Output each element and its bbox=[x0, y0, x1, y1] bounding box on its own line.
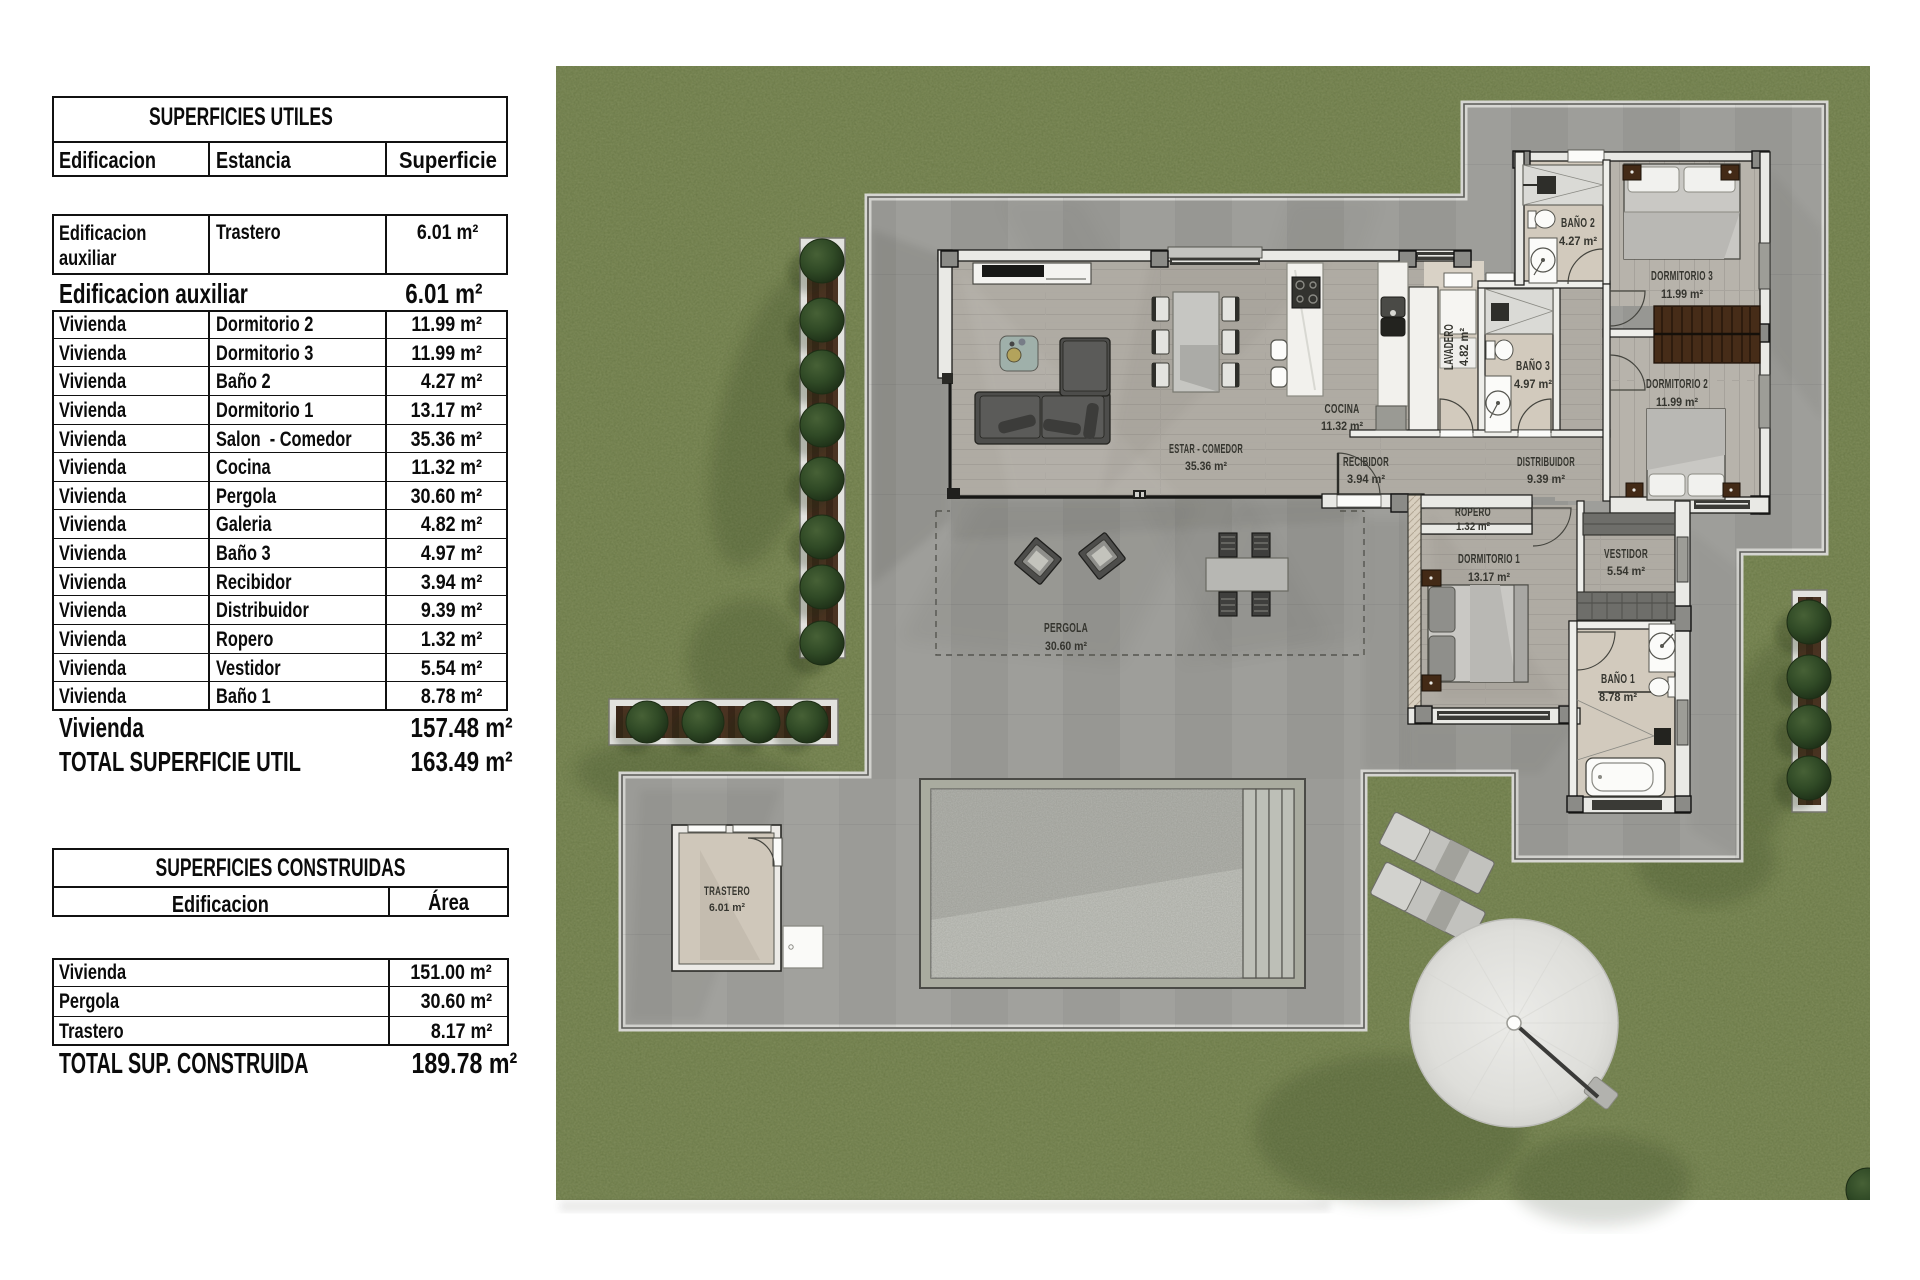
svg-text:35.36 m²: 35.36 m² bbox=[1185, 459, 1227, 473]
svg-text:11.32 m²: 11.32 m² bbox=[1321, 419, 1363, 433]
svg-text:6.01 m²: 6.01 m² bbox=[709, 902, 745, 914]
svg-text:11.99 m²: 11.99 m² bbox=[1656, 395, 1698, 409]
svg-text:ROPERO: ROPERO bbox=[1455, 505, 1491, 519]
svg-text:4.97 m²: 4.97 m² bbox=[1514, 377, 1552, 391]
svg-text:11.99 m²: 11.99 m² bbox=[1661, 287, 1703, 301]
svg-text:DORMITORIO 2: DORMITORIO 2 bbox=[1646, 376, 1708, 391]
svg-text:COCINA: COCINA bbox=[1325, 401, 1360, 416]
svg-text:BAÑO 3: BAÑO 3 bbox=[1516, 358, 1550, 373]
svg-text:4.27 m²: 4.27 m² bbox=[1559, 234, 1597, 248]
svg-text:RECIBIDOR: RECIBIDOR bbox=[1343, 454, 1389, 469]
svg-text:PERGOLA: PERGOLA bbox=[1044, 620, 1088, 635]
svg-text:1.32 m²: 1.32 m² bbox=[1456, 521, 1490, 533]
svg-text:9.39 m²: 9.39 m² bbox=[1527, 472, 1565, 486]
svg-text:5.54 m²: 5.54 m² bbox=[1607, 564, 1645, 578]
svg-text:BAÑO 1: BAÑO 1 bbox=[1601, 671, 1635, 686]
svg-text:4.82 m²: 4.82 m² bbox=[1457, 328, 1471, 366]
svg-text:30.60 m²: 30.60 m² bbox=[1045, 639, 1087, 653]
svg-text:13.17 m²: 13.17 m² bbox=[1468, 570, 1510, 584]
svg-text:BAÑO 2: BAÑO 2 bbox=[1561, 215, 1595, 230]
svg-text:LAVADERO: LAVADERO bbox=[1441, 324, 1456, 370]
svg-text:DORMITORIO 3: DORMITORIO 3 bbox=[1651, 268, 1713, 283]
svg-text:8.78 m²: 8.78 m² bbox=[1599, 690, 1637, 704]
svg-text:VESTIDOR: VESTIDOR bbox=[1604, 546, 1648, 561]
svg-text:3.94 m²: 3.94 m² bbox=[1347, 472, 1385, 486]
svg-text:TRASTERO: TRASTERO bbox=[704, 884, 750, 898]
svg-text:DORMITORIO 1: DORMITORIO 1 bbox=[1458, 551, 1520, 566]
svg-text:DISTRIBUIDOR: DISTRIBUIDOR bbox=[1517, 454, 1575, 469]
svg-text:ESTAR - COMEDOR: ESTAR - COMEDOR bbox=[1169, 441, 1243, 456]
